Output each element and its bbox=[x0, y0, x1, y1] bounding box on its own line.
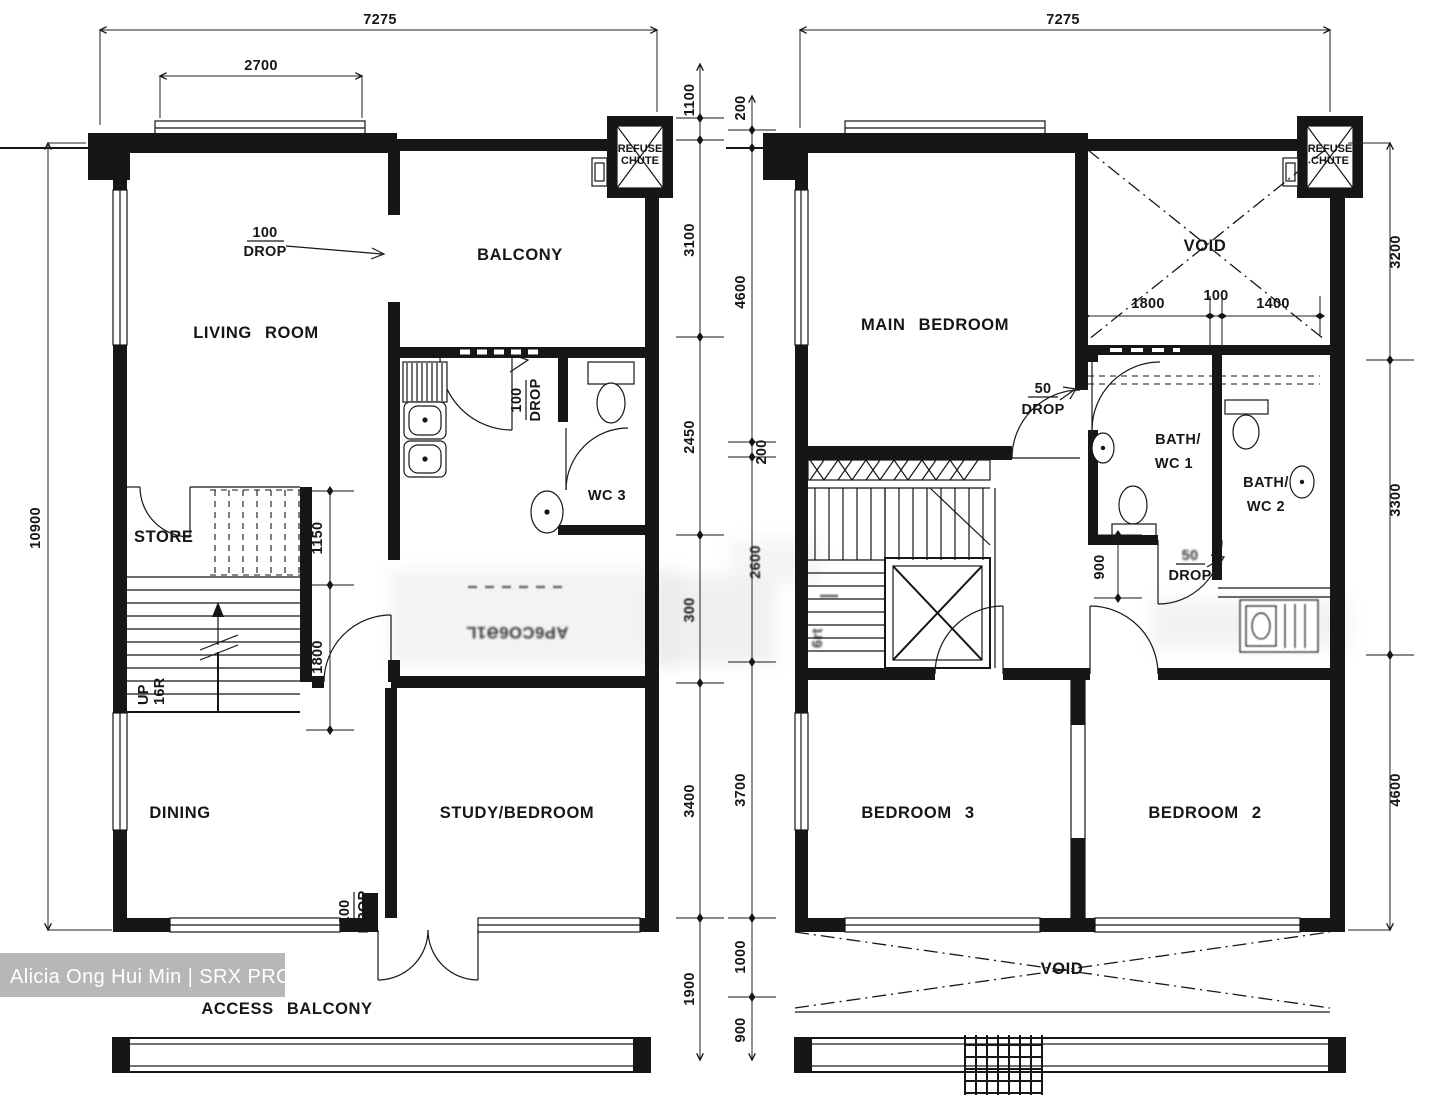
svg-text:100: 100 bbox=[1203, 288, 1228, 304]
svg-text:DROP: DROP bbox=[1021, 402, 1064, 418]
kitchen-sink bbox=[403, 362, 447, 477]
refuse-chute-label: REFUSE bbox=[618, 143, 663, 155]
svg-text:3400: 3400 bbox=[682, 784, 698, 817]
upper-stairs: 6rt bbox=[795, 488, 995, 668]
svg-text:3100: 3100 bbox=[682, 223, 698, 256]
access-balcony-label: ACCESS BALCONY bbox=[201, 1000, 372, 1018]
store-label: STORE bbox=[134, 528, 194, 546]
svg-text:4600: 4600 bbox=[733, 275, 749, 308]
svg-text:2450: 2450 bbox=[682, 420, 698, 453]
scan-smears bbox=[390, 540, 1350, 665]
main-bedroom-partition bbox=[795, 143, 1088, 480]
grille-symbol bbox=[965, 1035, 1042, 1095]
svg-text:900: 900 bbox=[733, 1017, 749, 1042]
svg-text:100: 100 bbox=[509, 387, 525, 412]
agent-watermark: Alicia Ong Hui Min | SRX PROPERTY bbox=[0, 953, 360, 997]
svg-text:7275: 7275 bbox=[1046, 12, 1079, 28]
drop-label-balcony: 100 DROP bbox=[243, 225, 384, 260]
svg-text:WC 2: WC 2 bbox=[1247, 499, 1285, 515]
svg-text:AP6CO6Ə1L: AP6CO6Ə1L bbox=[466, 623, 569, 641]
svg-text:7275: 7275 bbox=[363, 12, 396, 28]
study-bedroom-label: STUDY/BEDROOM bbox=[440, 804, 594, 822]
lower-stair-dims: 1150 1800 bbox=[306, 486, 354, 735]
svg-text:1900: 1900 bbox=[682, 972, 698, 1005]
drop-label-main: 50 DROP bbox=[1021, 381, 1076, 418]
svg-text:1000: 1000 bbox=[733, 940, 749, 973]
lower-refuse-chute: REFUSE CHUTE bbox=[592, 116, 673, 198]
bath-wc1-label: BATH/ bbox=[1155, 432, 1201, 448]
svg-text:1100: 1100 bbox=[682, 84, 698, 117]
void-lower-label: VOID bbox=[1041, 960, 1084, 978]
svg-text:200: 200 bbox=[733, 95, 749, 120]
agent-watermark-text: Alicia Ong Hui Min | SRX PROPERTY bbox=[10, 966, 360, 988]
svg-text:1800: 1800 bbox=[1131, 296, 1164, 312]
lower-dim-left: 10900 bbox=[28, 143, 112, 930]
living-room-label: LIVING ROOM bbox=[193, 324, 319, 342]
balcony-label: BALCONY bbox=[477, 246, 563, 264]
svg-text:1400: 1400 bbox=[1256, 296, 1289, 312]
svg-text:3200: 3200 bbox=[1388, 235, 1404, 268]
bath-wc2-label: BATH/ bbox=[1243, 475, 1289, 491]
upper-dim-right-column: 3200 3300 4600 bbox=[1348, 143, 1414, 930]
svg-text:CHUTE: CHUTE bbox=[621, 155, 659, 167]
svg-text:100: 100 bbox=[337, 899, 353, 924]
svg-text:10900: 10900 bbox=[28, 507, 44, 549]
svg-text:1800: 1800 bbox=[310, 640, 326, 673]
main-bedroom-label: MAIN BEDROOM bbox=[861, 316, 1009, 334]
svg-text:3300: 3300 bbox=[1388, 483, 1404, 516]
floorplan-image: REFUSE CHUTE 100 DROP bbox=[0, 0, 1440, 1102]
upper-dim-top: 7275 bbox=[800, 12, 1330, 128]
lower-dim-top: 7275 2700 bbox=[100, 12, 657, 125]
svg-text:100: 100 bbox=[252, 225, 277, 241]
svg-text:DROP: DROP bbox=[356, 890, 372, 933]
void-upper-label: VOID bbox=[1184, 237, 1227, 255]
upper-floor-plan: REFUSE CHUTE VOID 1800 100 1400 bbox=[726, 12, 1414, 1095]
svg-text:4600: 4600 bbox=[1388, 773, 1404, 806]
drop-label-kitchen: 100 DROP bbox=[509, 356, 544, 422]
svg-text:DROP: DROP bbox=[1168, 568, 1211, 584]
lower-floor-plan: REFUSE CHUTE 100 DROP bbox=[0, 12, 724, 1072]
svg-text:16R: 16R bbox=[152, 677, 168, 705]
svg-text:6rt: 6rt bbox=[810, 628, 826, 648]
upper-refuse-chute: REFUSE CHUTE bbox=[1283, 116, 1363, 198]
bedroom-partitions bbox=[795, 606, 1335, 918]
svg-text:1150: 1150 bbox=[310, 522, 326, 555]
svg-text:REFUSE: REFUSE bbox=[1308, 143, 1353, 155]
svg-text:DROP: DROP bbox=[528, 378, 544, 421]
bedroom3-label: BEDROOM 3 bbox=[861, 804, 974, 822]
lower-dim-right-column: 1100 3100 2450 300 3400 1900 bbox=[676, 64, 724, 1060]
svg-text:200: 200 bbox=[754, 439, 770, 464]
wc3-room: WC 3 bbox=[531, 358, 659, 535]
upper-void-lower: VOID bbox=[795, 932, 1345, 1095]
svg-text:2700: 2700 bbox=[244, 58, 277, 74]
svg-text:50: 50 bbox=[1182, 548, 1199, 564]
dining-label: DINING bbox=[149, 804, 210, 822]
svg-text:DROP: DROP bbox=[243, 244, 286, 260]
svg-text:3700: 3700 bbox=[733, 773, 749, 806]
access-balcony-structure bbox=[113, 1038, 650, 1072]
svg-text:300: 300 bbox=[682, 597, 698, 622]
wc3-label: WC 3 bbox=[588, 488, 626, 504]
bedroom2-label: BEDROOM 2 bbox=[1148, 804, 1261, 822]
svg-text:2600: 2600 bbox=[748, 545, 764, 578]
svg-text:WC 1: WC 1 bbox=[1155, 456, 1193, 472]
svg-text:UP: UP bbox=[136, 684, 152, 705]
svg-text:900: 900 bbox=[1092, 554, 1108, 579]
store-and-stairs: UP 16R STORE bbox=[127, 487, 312, 712]
svg-text:50: 50 bbox=[1035, 381, 1052, 397]
